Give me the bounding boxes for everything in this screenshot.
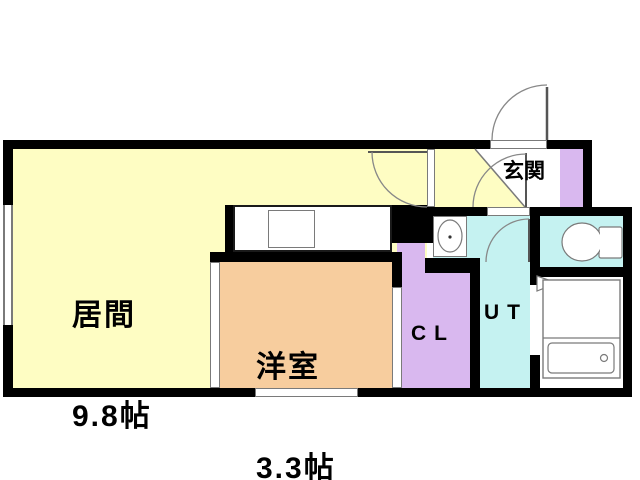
- window-left: [3, 205, 13, 325]
- wall-closet-utility: [470, 258, 480, 388]
- floor-plan: 居間 9.8帖 洋室 3.3帖 玄関 UT CL: [0, 0, 640, 480]
- living-room-label: 居間 9.8帖: [72, 232, 152, 480]
- opening-living-western: [210, 262, 220, 388]
- closet-label: CL: [411, 322, 455, 346]
- western-room-label: 洋室 3.3帖: [256, 284, 336, 480]
- opening-hall: [487, 207, 530, 216]
- wall-right-lower: [623, 208, 632, 397]
- wall-right-upper: [583, 140, 592, 216]
- utility-label: UT: [484, 301, 528, 325]
- toilet-room-floor: [540, 216, 623, 267]
- opening-western-closet: [392, 287, 402, 388]
- washbasin-unit: [433, 216, 467, 257]
- entrance-door-sill: [490, 140, 547, 149]
- entrance-side-closet-floor: [560, 149, 583, 207]
- wall-entrance-bottom: [430, 207, 632, 216]
- entrance-door-arc: [492, 85, 547, 140]
- opening-bath-door: [530, 285, 540, 355]
- opening-kitchen-doorframe: [427, 149, 435, 207]
- wall-toilet-bath: [540, 267, 632, 277]
- western-room-size: 3.3帖: [256, 452, 336, 480]
- wall-western-right: [392, 262, 402, 287]
- living-room-name: 居間: [72, 299, 152, 333]
- kitchen-sink: [268, 210, 315, 248]
- living-room-size: 9.8帖: [72, 400, 152, 434]
- western-room-name: 洋室: [256, 351, 336, 385]
- wall-western-top: [210, 252, 402, 262]
- bath-room-floor: [540, 277, 623, 388]
- wall-kitchen-left: [225, 205, 233, 252]
- entrance-label: 玄関: [503, 160, 545, 184]
- wall-block-center: [392, 205, 433, 243]
